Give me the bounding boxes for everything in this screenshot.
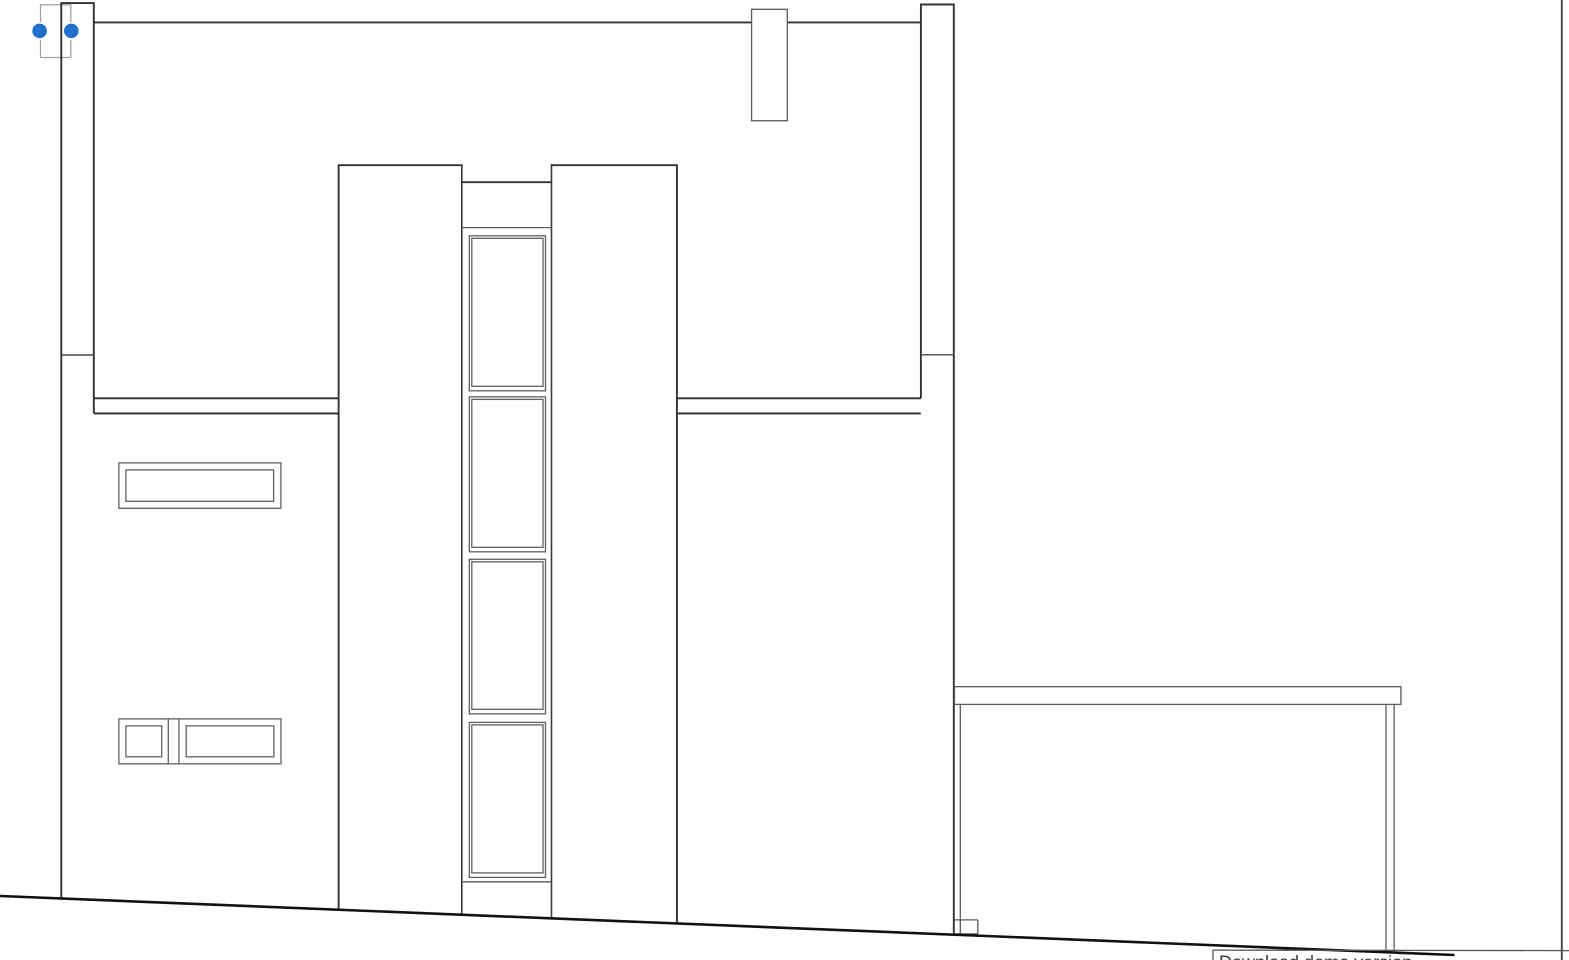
svg-text:Download demo version: Download demo version bbox=[1219, 953, 1412, 960]
